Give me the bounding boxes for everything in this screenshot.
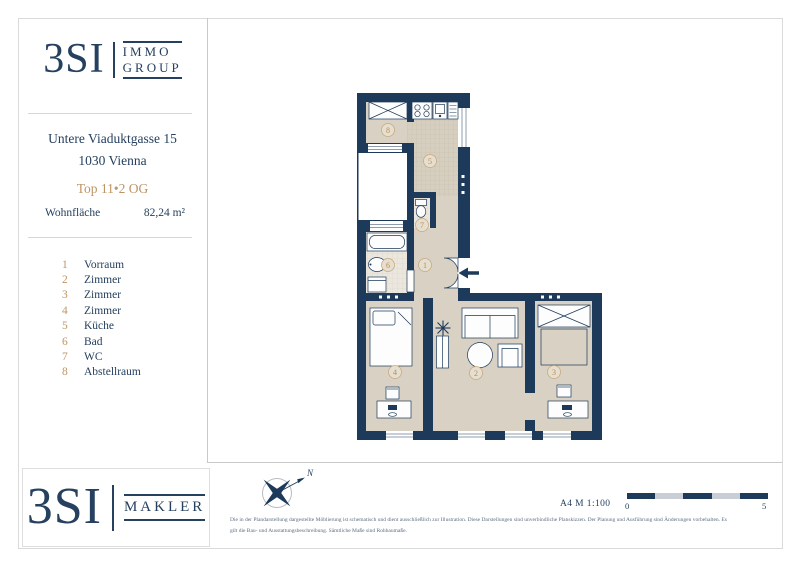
desk-chair (557, 385, 571, 397)
legend-room-name: Abstellraum (84, 366, 141, 378)
legend-room-number: 2 (62, 274, 74, 286)
desk-chair (386, 387, 399, 399)
footer-logo-word-block: MAKLER (124, 494, 205, 522)
legend-room-number: 7 (62, 351, 74, 363)
legend-row: 7 WC (18, 349, 207, 364)
lightwell-window-bottom (370, 221, 403, 231)
armchair (498, 344, 522, 367)
disclaimer-line-2: gilt die Bau- und Ausstattungsbeschreibu… (230, 526, 782, 537)
window-room3 (543, 431, 571, 440)
footer-logo-brand: 3SI (27, 484, 102, 531)
room-label-2: 2 (474, 369, 478, 378)
address-city: 1030 Vienna (18, 153, 207, 169)
stove (412, 102, 432, 119)
room-label-6: 6 (386, 261, 390, 270)
legend-row: 5 Küche (18, 319, 207, 334)
toilet (416, 200, 427, 206)
sidebar-rule-bottom (28, 237, 192, 238)
room-legend: 1 Vorraum 2 Zimmer 3 Zimmer 4 Zimmer 5 K… (18, 257, 207, 380)
logo-brand-text: 3SI (43, 40, 104, 80)
footer-logo-rule-top (124, 494, 205, 496)
legend-room-name: Bad (84, 336, 103, 348)
room-label-3: 3 (552, 368, 556, 377)
bathroom-door (407, 270, 414, 292)
immo-group-logo: 3SI IMMO GROUP (18, 40, 207, 80)
disclaimer-text: Die in der Plandarstellung dargestellte … (230, 515, 782, 536)
sofa (462, 308, 518, 338)
legend-room-name: Zimmer (84, 305, 121, 317)
lightwell-window-top (368, 144, 402, 152)
logo-rule-top (123, 41, 182, 43)
legend-room-name: Zimmer (84, 289, 121, 301)
legend-room-name: Vorraum (84, 259, 124, 271)
legend-room-number: 4 (62, 305, 74, 317)
logo-word-block: IMMO GROUP (123, 41, 182, 80)
window-room2-right (505, 431, 532, 440)
room-abstellraum (369, 102, 407, 119)
legend-room-number: 8 (62, 366, 74, 378)
legend-room-number: 6 (62, 336, 74, 348)
legend-room-number: 1 (62, 259, 74, 271)
kitchen-window (458, 108, 470, 147)
window-room4 (386, 431, 413, 440)
legend-room-name: Küche (84, 320, 114, 332)
living-area-row: Wohnfläche 82,24 m² (18, 207, 207, 219)
kitchen-counter-unit (448, 102, 458, 119)
wardrobe-crossed (538, 305, 590, 327)
makler-logo: 3SI MAKLER (22, 468, 210, 547)
legend-room-name: WC (84, 351, 103, 363)
sidebar-divider (207, 18, 208, 462)
legend-row: 4 Zimmer (18, 303, 207, 318)
washing-machine (368, 277, 386, 292)
bed (370, 308, 412, 366)
footer-logo-word: MAKLER (124, 498, 205, 518)
floor-plan: 1 2 3 4 5 6 7 8 (352, 88, 604, 452)
legend-row: 6 Bad (18, 334, 207, 349)
scale-bar-end: 5 (762, 501, 766, 511)
room-label-7: 7 (420, 221, 424, 230)
logo-word-group: GROUP (123, 61, 182, 75)
scale-bar (627, 493, 768, 499)
room-label-4: 4 (393, 368, 397, 377)
legend-row: 8 Abstellraum (18, 365, 207, 380)
compass-north-label: N (306, 468, 314, 478)
desk (377, 401, 411, 418)
legend-room-number: 3 (62, 289, 74, 301)
room-wc (416, 200, 427, 218)
sidebar-rule-top (28, 113, 192, 114)
logo-word-immo: IMMO (123, 45, 182, 59)
footer-logo-divider (112, 485, 114, 531)
wardrobe (437, 336, 449, 368)
logo-divider (113, 42, 115, 78)
room-label-1: 1 (423, 261, 427, 270)
living-area-value: 82,24 m² (144, 207, 185, 219)
living-area-label: Wohnfläche (45, 207, 100, 219)
address-street: Untere Viaduktgasse 15 (18, 131, 207, 147)
round-table (468, 343, 493, 368)
room-label-8: 8 (386, 126, 390, 135)
unit-top-label: Top 11•2 OG (18, 181, 207, 197)
plant-icon (436, 321, 451, 336)
legend-row: 1 Vorraum (18, 257, 207, 272)
room-label-5: 5 (428, 157, 432, 166)
scale-bar-start: 0 (625, 501, 629, 511)
legend-room-number: 5 (62, 320, 74, 332)
legend-room-name: Zimmer (84, 274, 121, 286)
bathtub (367, 233, 407, 251)
disclaimer-line-1: Die in der Plandarstellung dargestellte … (230, 515, 782, 526)
kitchen-sink (433, 102, 447, 119)
paper-scale-label: A4 M 1:100 (560, 499, 610, 509)
room-kueche (412, 102, 458, 119)
window-room2-left (458, 431, 485, 440)
footer-logo-rule-bottom (124, 519, 205, 521)
logo-rule-bottom (123, 77, 182, 79)
lightwell (359, 153, 408, 220)
legend-row: 2 Zimmer (18, 272, 207, 287)
legend-row: 3 Zimmer (18, 288, 207, 303)
desk (548, 401, 588, 418)
